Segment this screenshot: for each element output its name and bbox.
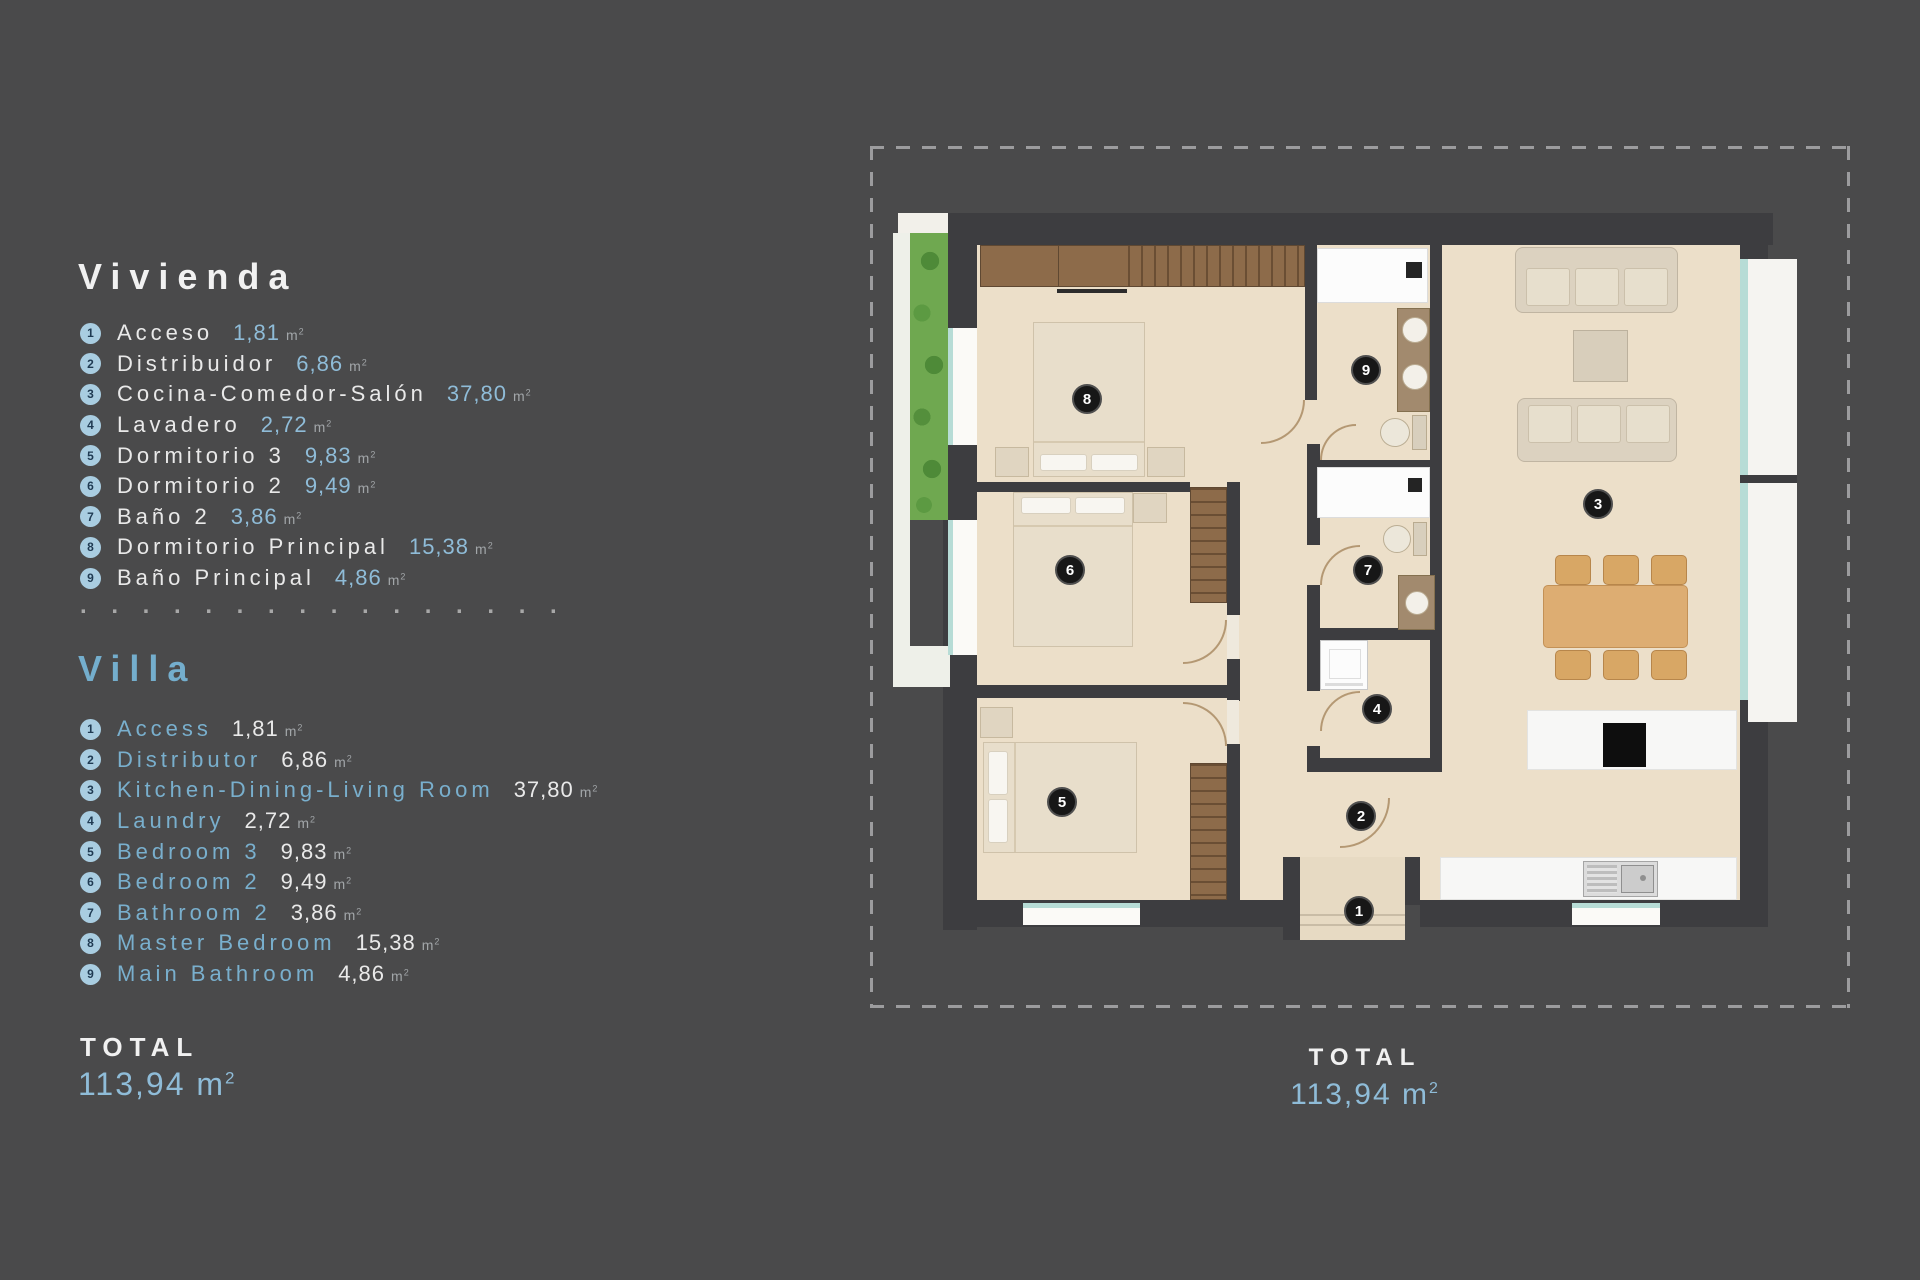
item-area: 15,38m2 xyxy=(409,534,494,560)
item-room-name: Baño 2 xyxy=(117,504,211,530)
item-room-name: Dormitorio Principal xyxy=(117,534,389,560)
item-area: 37,80m2 xyxy=(447,381,532,407)
item-area: 3,86m2 xyxy=(291,900,363,926)
item-area: 1,81m2 xyxy=(233,320,305,346)
nightstand xyxy=(1147,447,1185,477)
nightstand xyxy=(1133,493,1167,523)
room-number-marker: 2 xyxy=(1346,801,1376,831)
legend-title-vivienda: Vivienda xyxy=(78,256,297,298)
item-number-badge: 6 xyxy=(80,476,101,497)
wall-master-bath xyxy=(1305,245,1317,400)
item-area: 9,83m2 xyxy=(305,443,377,469)
wall-bedrooms-hall-3 xyxy=(1227,744,1240,900)
legend-total-label: TOTAL xyxy=(80,1032,199,1063)
item-room-name: Access xyxy=(117,716,212,742)
window-bedroom3 xyxy=(1023,903,1140,925)
nightstand xyxy=(995,447,1029,477)
room-number-marker: 1 xyxy=(1344,896,1374,926)
item-area: 4,86m2 xyxy=(338,961,410,987)
wall-bedroom8-bedroom6 xyxy=(977,482,1190,492)
legend-item: 8 Dormitorio Principal 15,38m2 xyxy=(80,532,720,563)
item-area: 9,49m2 xyxy=(305,473,377,499)
item-number-badge: 8 xyxy=(80,537,101,558)
item-room-name: Bedroom 3 xyxy=(117,839,261,865)
legend-item: 5 Dormitorio 3 9,83m2 xyxy=(80,440,720,471)
kitchen-bottom-counter xyxy=(1440,857,1737,900)
wall-exterior-right-lower xyxy=(1740,692,1768,927)
door-leaf-bedroom2 xyxy=(1227,615,1239,659)
wall-bedrooms-hall-1 xyxy=(1227,482,1240,615)
item-area: 2,72m2 xyxy=(245,808,317,834)
item-number-badge: 2 xyxy=(80,749,101,770)
legend-item: 9 Baño Principal 4,86m2 xyxy=(80,563,720,594)
item-room-name: Dormitorio 3 xyxy=(117,443,285,469)
item-area: 4,86m2 xyxy=(335,565,407,591)
legend-item: 4 Laundry 2,72m2 xyxy=(80,806,720,837)
wall-bath-living xyxy=(1430,245,1442,772)
legend-list-vivienda: 1 Acceso 1,81m2 2 Distribuidor 6,86m2 3 … xyxy=(80,318,720,593)
plan-total-number: 113,94 xyxy=(1290,1078,1392,1111)
item-area: 9,49m2 xyxy=(281,869,353,895)
garden-strip xyxy=(910,233,948,520)
door-leaf-bedroom3 xyxy=(1227,700,1239,744)
wall-entry-left xyxy=(1283,857,1300,940)
legend-item: 1 Acceso 1,81m2 xyxy=(80,318,720,349)
legend-item: 8 Master Bedroom 15,38m2 xyxy=(80,928,720,959)
item-number-badge: 3 xyxy=(80,780,101,801)
plot-boundary-top xyxy=(870,146,1850,149)
floor-plan: 123456789 xyxy=(870,146,1850,1008)
window-kitchen xyxy=(1572,903,1660,925)
item-area: 3,86m2 xyxy=(231,504,303,530)
wall-bedroom6-bedroom5 xyxy=(977,685,1233,698)
legend-item: 9 Main Bathroom 4,86m2 xyxy=(80,959,720,990)
item-room-name: Distribuidor xyxy=(117,351,276,377)
item-room-name: Main Bathroom xyxy=(117,961,318,987)
item-room-name: Baño Principal xyxy=(117,565,315,591)
item-number-badge: 9 xyxy=(80,964,101,985)
wall-exterior-right-upper xyxy=(1740,245,1768,259)
legend-item: 5 Bedroom 3 9,83m2 xyxy=(80,836,720,867)
legend-item: 3 Kitchen-Dining-Living Room 37,80m2 xyxy=(80,775,720,806)
item-room-name: Bedroom 2 xyxy=(117,869,261,895)
room-number-marker: 4 xyxy=(1362,694,1392,724)
vanity-bathroom2 xyxy=(1398,575,1435,630)
room-number-marker: 8 xyxy=(1072,384,1102,414)
item-number-badge: 9 xyxy=(80,568,101,589)
washing-machine xyxy=(1320,640,1368,690)
legend-total-number: 113,94 xyxy=(78,1066,186,1102)
legend-item: 7 Bathroom 2 3,86m2 xyxy=(80,898,720,929)
item-number-badge: 6 xyxy=(80,872,101,893)
plan-total-label: TOTAL xyxy=(1245,1044,1485,1072)
shower-bathroom2 xyxy=(1317,467,1430,518)
kitchen-sink xyxy=(1583,861,1658,897)
plot-boundary-right xyxy=(1847,146,1850,1008)
item-number-badge: 5 xyxy=(80,841,101,862)
item-number-badge: 5 xyxy=(80,445,101,466)
room-number-marker: 6 xyxy=(1055,555,1085,585)
item-room-name: Acceso xyxy=(117,320,213,346)
wall-hall-bath-lower xyxy=(1307,585,1320,628)
item-number-badge: 1 xyxy=(80,323,101,344)
shower-main-bathroom xyxy=(1317,248,1428,303)
plan-total: TOTAL 113,94 m2 xyxy=(1245,1044,1485,1112)
dining-chair xyxy=(1651,555,1687,585)
tv-master xyxy=(1057,289,1127,293)
plot-boundary-left xyxy=(870,146,873,1008)
item-number-badge: 4 xyxy=(80,811,101,832)
closet-master xyxy=(980,245,1305,287)
legend-item: 6 Dormitorio 2 9,49m2 xyxy=(80,471,720,502)
wardrobe-bedroom3 xyxy=(1190,763,1227,900)
dining-chair xyxy=(1603,650,1639,680)
item-room-name: Cocina-Comedor-Salón xyxy=(117,381,427,407)
item-number-badge: 8 xyxy=(80,933,101,954)
legend-item: 2 Distributor 6,86m2 xyxy=(80,745,720,776)
plot-boundary-bottom xyxy=(870,1005,1850,1008)
dining-chair xyxy=(1603,555,1639,585)
item-area: 6,86m2 xyxy=(296,351,368,377)
item-number-badge: 7 xyxy=(80,506,101,527)
wardrobe-bedroom2 xyxy=(1190,487,1227,603)
window-bedroom2 xyxy=(948,520,977,655)
legend-total-value: 113,94 m2 xyxy=(78,1066,237,1103)
item-room-name: Lavadero xyxy=(117,412,241,438)
toilet-bathroom2 xyxy=(1383,522,1427,556)
wall-exterior-top xyxy=(943,213,1773,245)
legend-item: 3 Cocina-Comedor-Salón 37,80m2 xyxy=(80,379,720,410)
cooktop xyxy=(1603,723,1646,767)
legend-panel: Vivienda 1 Acceso 1,81m2 2 Distribuidor … xyxy=(78,0,718,1280)
wall-bath9-bath7 xyxy=(1317,460,1430,467)
legend-separator: . . . . . . . . . . . . . . . . xyxy=(80,592,566,620)
coffee-table xyxy=(1573,330,1628,382)
dining-table xyxy=(1543,585,1688,648)
item-area: 9,83m2 xyxy=(281,839,353,865)
wall-laundry-left-1 xyxy=(1307,640,1320,691)
legend-list-villa: 1 Access 1,81m2 2 Distributor 6,86m2 3 K… xyxy=(80,714,720,989)
room-number-marker: 5 xyxy=(1047,787,1077,817)
room-number-marker: 3 xyxy=(1583,489,1613,519)
legend-item: 1 Access 1,81m2 xyxy=(80,714,720,745)
planter-edge xyxy=(893,233,910,687)
plan-total-value: 113,94 m2 xyxy=(1245,1078,1485,1112)
legend-item: 2 Distribuidor 6,86m2 xyxy=(80,349,720,380)
item-number-badge: 4 xyxy=(80,415,101,436)
window-living-mullion xyxy=(1740,475,1797,483)
kitchen-peninsula-counter xyxy=(1527,710,1737,770)
wall-entry-right xyxy=(1405,857,1420,905)
item-number-badge: 1 xyxy=(80,719,101,740)
sofa xyxy=(1515,247,1678,313)
item-area: 1,81m2 xyxy=(232,716,304,742)
item-number-badge: 2 xyxy=(80,353,101,374)
toilet-main-bathroom xyxy=(1380,415,1427,450)
plan-total-unit: m2 xyxy=(1402,1078,1440,1111)
legend-total-unit: m2 xyxy=(196,1066,236,1102)
dining-chair xyxy=(1651,650,1687,680)
item-room-name: Laundry xyxy=(117,808,225,834)
room-number-marker: 9 xyxy=(1351,355,1381,385)
nightstand xyxy=(980,707,1013,738)
item-room-name: Bathroom 2 xyxy=(117,900,271,926)
item-room-name: Dormitorio 2 xyxy=(117,473,285,499)
item-room-name: Distributor xyxy=(117,747,261,773)
sofa xyxy=(1517,398,1677,462)
item-area: 37,80m2 xyxy=(514,777,599,803)
item-number-badge: 3 xyxy=(80,384,101,405)
floorplan-infographic: Vivienda 1 Acceso 1,81m2 2 Distribuidor … xyxy=(0,0,1920,1280)
window-living-sill xyxy=(1748,259,1797,722)
wall-laundry-bottom xyxy=(1307,758,1442,772)
room-number-marker: 7 xyxy=(1353,555,1383,585)
item-room-name: Master Bedroom xyxy=(117,930,336,956)
item-area: 2,72m2 xyxy=(261,412,333,438)
item-area: 6,86m2 xyxy=(281,747,353,773)
item-room-name: Kitchen-Dining-Living Room xyxy=(117,777,494,803)
vanity-main-bathroom xyxy=(1397,308,1430,412)
planter-bottom-cap xyxy=(910,646,950,687)
legend-item: 7 Baño 2 3,86m2 xyxy=(80,502,720,533)
item-area: 15,38m2 xyxy=(356,930,441,956)
dining-chair xyxy=(1555,650,1591,680)
window-master-bedroom xyxy=(948,328,977,445)
legend-title-villa: Villa xyxy=(78,648,196,690)
item-number-badge: 7 xyxy=(80,902,101,923)
dining-chair xyxy=(1555,555,1591,585)
legend-item: 6 Bedroom 2 9,49m2 xyxy=(80,867,720,898)
legend-item: 4 Lavadero 2,72m2 xyxy=(80,410,720,441)
